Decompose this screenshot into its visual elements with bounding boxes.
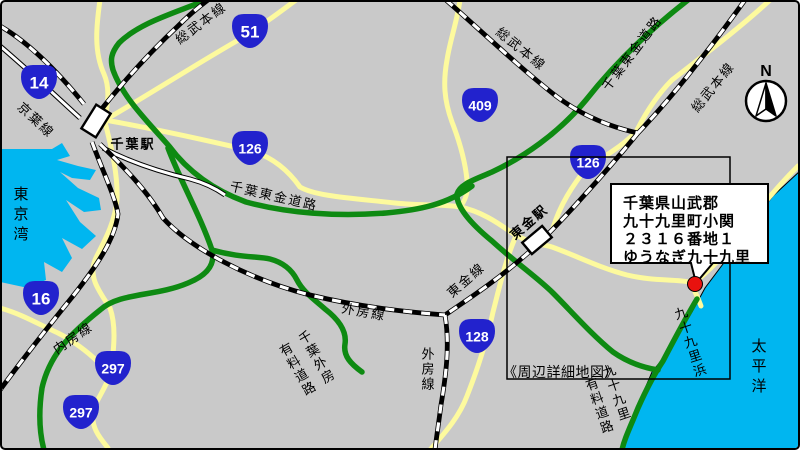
label-detail-map-note: 《周辺詳細地図》 <box>503 365 619 379</box>
route-number: 16 <box>32 289 51 308</box>
label-pacific-ocean: 太平洋 <box>751 338 766 398</box>
tollroad-chiba-togane <box>111 2 472 215</box>
route-shield-128: 128 <box>459 319 495 353</box>
map-canvas: 14 51 126 409 126 16 <box>0 0 800 450</box>
label-sotobo-line-south: 外房線 <box>421 347 434 392</box>
destination-marker <box>688 277 703 292</box>
compass-rose: N <box>746 63 786 121</box>
route-shield-297-north: 297 <box>95 351 131 385</box>
address-line-2: 九十九里町小関 <box>623 213 751 231</box>
compass-north-label: N <box>760 63 772 80</box>
route-shield-409: 409 <box>462 88 498 122</box>
route-shield-126-west: 126 <box>232 131 268 165</box>
label-chiba-station: 千葉駅 <box>110 138 155 151</box>
route-number: 297 <box>69 405 93 421</box>
route-number: 297 <box>101 361 125 377</box>
route-number: 128 <box>465 329 489 345</box>
route-shield-16: 16 <box>23 281 59 315</box>
address-callout-text: 千葉県山武郡 九十九里町小関 ２３１６番地１ ゆうなぎ九十九里 <box>623 195 751 267</box>
route-number: 126 <box>238 141 262 157</box>
address-line-3: ２３１６番地１ <box>623 231 751 249</box>
label-tokyo-bay: 東京湾 <box>13 186 28 246</box>
route-number: 409 <box>468 98 492 114</box>
route-number: 14 <box>30 73 49 92</box>
address-line-1: 千葉県山武郡 <box>623 195 751 213</box>
route-number: 51 <box>241 22 260 41</box>
address-line-4: ゆうなぎ九十九里 <box>623 249 751 267</box>
